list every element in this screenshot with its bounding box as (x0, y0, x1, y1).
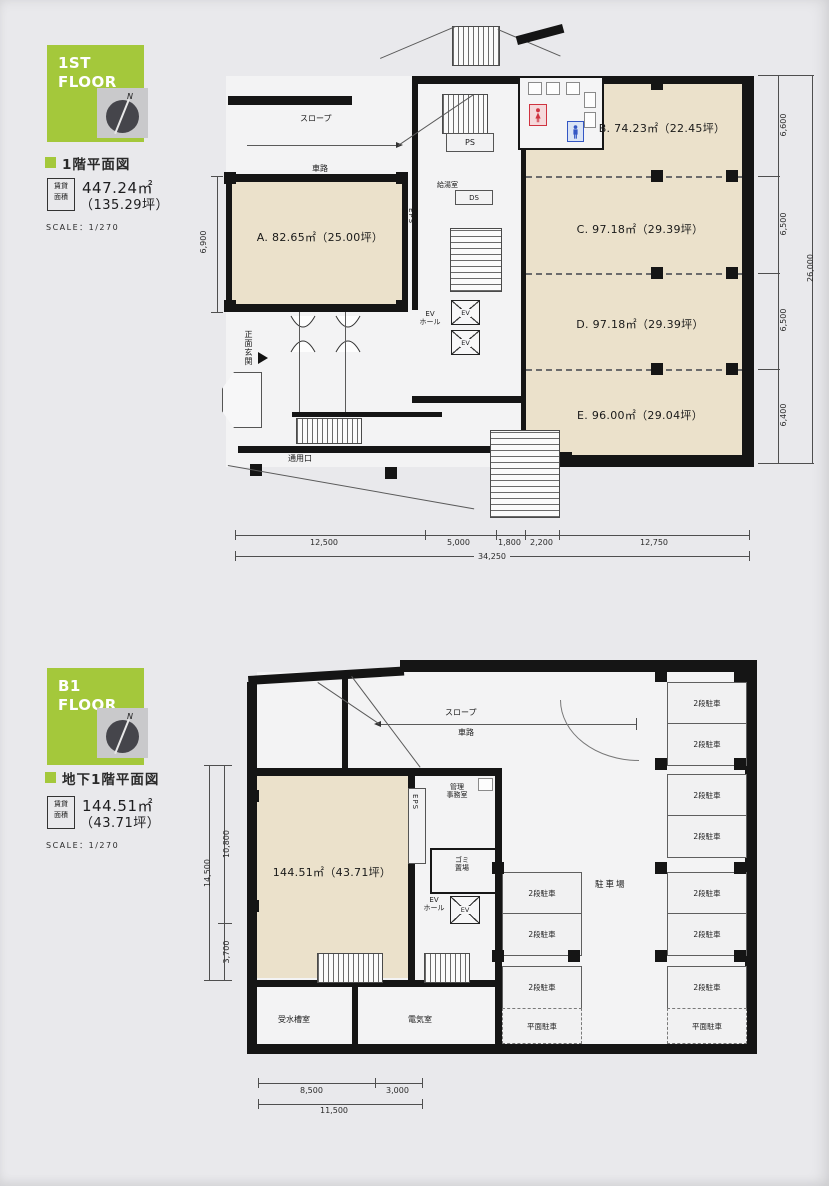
b1-elevator: EV (450, 896, 480, 924)
f1-dash-de (526, 369, 742, 371)
female-restroom-icon (529, 104, 547, 126)
f1-column (396, 172, 408, 184)
f1-room-d-label: D. 97.18㎡（29.39坪） (560, 316, 720, 332)
floor1-badge-line1: 1ST (58, 54, 144, 73)
f1-canopy-wall (516, 24, 565, 45)
dim-tick (204, 765, 232, 766)
b1-stair-2 (424, 953, 470, 983)
dim-tick (749, 551, 750, 561)
f1-dim-bottom-1: 12,500 (310, 538, 338, 547)
b1-stair-1 (317, 953, 383, 983)
b1-wall-bottom (247, 1044, 757, 1054)
b1-mgmt-office-label: 管理 事務室 (435, 783, 479, 799)
scanned-floorplan-page: 1ST FLOOR N 1階平面図 賃貸 面積 447.24㎡ （135.29坪… (0, 0, 829, 1186)
f1-elevator-2: EV (451, 330, 480, 355)
b1-desk-fixture (478, 778, 493, 791)
b1-water-tank-label: 受水槽室 (278, 1014, 310, 1025)
b1-column (655, 862, 667, 874)
b1-wall-upper-divider (342, 672, 348, 772)
b1-wall-tenant-top (247, 768, 502, 776)
b1-wall-top (400, 660, 757, 672)
f1-site-line (228, 465, 474, 509)
dim-tick (758, 369, 780, 370)
f1-dim-bottom-5: 12,750 (640, 538, 668, 547)
b1-area-tsubo: （43.71坪） (80, 812, 160, 831)
b1-column (734, 670, 746, 682)
b1-dim-left-2: 3,700 (222, 922, 234, 982)
b1-column (568, 950, 580, 962)
f1-core-wall-left (412, 84, 418, 310)
b1-column (655, 670, 667, 682)
b1-wall-core-right (495, 776, 502, 1044)
dim-tick (525, 530, 526, 540)
f1-roomA-wall-left (226, 182, 232, 304)
b1-wall-room-divider (352, 987, 358, 1044)
f1-dim-right-1: 6,600 (779, 95, 791, 155)
f1-column (385, 467, 397, 479)
f1-main-entrance-arrow (258, 352, 268, 364)
b1-column (734, 758, 746, 770)
b1-dim-bottom-total: 11,500 (316, 1106, 352, 1115)
b1-column (655, 758, 667, 770)
f1-slope-label: スロープ (300, 113, 332, 124)
b1-tenant-room-label: 144.51㎡（43.71坪） (252, 864, 412, 880)
f1-column (726, 170, 738, 182)
dim-line (217, 176, 218, 312)
dim-tick (496, 530, 497, 540)
dim-line (235, 535, 749, 536)
f1-entry-door-2 (335, 314, 361, 354)
heading-bullet (45, 772, 56, 783)
dim-tick (758, 75, 814, 76)
f1-column (396, 300, 408, 312)
f1-wall-right (742, 76, 754, 467)
b1-dim-left-total: 14,500 (203, 843, 215, 903)
b1-dim-bottom-1: 8,500 (300, 1086, 323, 1095)
f1-entry-door-1 (290, 314, 316, 354)
f1-stair-mid (450, 228, 502, 292)
b1-parking-lot-label: 駐車場 (595, 878, 627, 890)
f1-ds-room: DS (455, 190, 493, 205)
f1-ps-room: PS (446, 133, 494, 152)
f1-column (651, 267, 663, 279)
wc-fixture (528, 82, 542, 95)
f1-column (651, 363, 663, 375)
f1-column (560, 452, 572, 464)
f1-roomA-wall-top (226, 174, 408, 182)
f1-dim-right-total: 26,000 (806, 238, 818, 298)
parking-cell-flat: 平面駐車 (667, 1008, 747, 1044)
f1-room-c-label: C. 97.18㎡（29.39坪） (560, 221, 720, 237)
dim-tick (425, 530, 426, 540)
f1-dim-right-3: 6,500 (779, 290, 791, 350)
f1-dim-bottom-3: 1,800 (498, 538, 521, 547)
dim-tick (235, 530, 236, 540)
b1-driveway-label: 車路 (458, 727, 474, 738)
parking-cell: 2段駐車 (667, 682, 747, 725)
f1-entry-guide (345, 312, 346, 412)
f1-room-b-label: B. 74.23㎡（22.45坪） (582, 120, 742, 136)
dim-tick (559, 530, 560, 540)
f1-entry-guide (299, 312, 300, 412)
f1-core-wall-bottom (412, 396, 526, 403)
compass-icon: N (97, 88, 148, 138)
f1-dim-bottom-total: 34,250 (474, 552, 510, 561)
compass-north-label: N (127, 712, 133, 721)
dim-tick (258, 1099, 259, 1109)
b1-heading: 地下1階平面図 (62, 768, 159, 788)
floor1-scale: SCALE：1/270 (46, 222, 119, 233)
floor1-area-tsubo: （135.29坪） (80, 194, 169, 213)
f1-ev-hall-label: EV ホール (415, 310, 445, 326)
floor1-heading: 1階平面図 (62, 153, 130, 173)
dim-line (258, 1083, 422, 1084)
b1-scale: SCALE：1/270 (46, 840, 119, 851)
f1-column (651, 170, 663, 182)
b1-column (247, 790, 259, 802)
f1-column (726, 363, 738, 375)
f1-dim-bottom-4: 2,200 (530, 538, 553, 547)
f1-canopy-line (380, 26, 456, 59)
f1-column (224, 300, 236, 312)
parking-cell: 2段駐車 (502, 872, 582, 915)
b1-trash-label: ゴミ 置場 (440, 856, 484, 872)
f1-room-e-label: E. 96.00㎡（29.04坪） (560, 407, 720, 423)
b1-eps-label: EPS (411, 794, 419, 834)
b1-badge-line1: B1 (58, 677, 144, 696)
dim-tick (211, 312, 223, 313)
compass-icon-b1: N (97, 708, 148, 758)
b1-column (247, 900, 259, 912)
f1-dim-left: 6,900 (199, 212, 211, 272)
f1-dim-right-4: 6,400 (779, 385, 791, 445)
f1-service-stair (296, 418, 362, 444)
dim-tick (375, 1078, 376, 1088)
f1-driveway-label: 車路 (312, 163, 328, 174)
f1-roomA-wall-bottom (226, 304, 408, 312)
f1-room-a-label: A. 82.65㎡（25.00坪） (240, 229, 400, 245)
wc-fixture (584, 92, 596, 108)
b1-lease-label: 賃貸 面積 (47, 796, 75, 829)
wc-fixture (546, 82, 560, 95)
parking-cell: 2段駐車 (667, 774, 747, 817)
b1-dim-left-1: 10,800 (222, 814, 234, 874)
f1-dim-right-2: 6,500 (779, 194, 791, 254)
f1-eps-label: EPS (407, 208, 415, 248)
f1-dim-bottom-2: 5,000 (447, 538, 470, 547)
f1-elevator-1: EV (451, 300, 480, 325)
f1-slope-line (247, 145, 397, 146)
b1-column (655, 950, 667, 962)
dim-tick (422, 1078, 423, 1088)
f1-dash-bc (526, 176, 742, 178)
b1-dim-bottom-2: 3,000 (386, 1086, 409, 1095)
b1-electrical-label: 電気室 (408, 1014, 432, 1025)
f1-column (651, 78, 663, 90)
parking-cell: 2段駐車 (667, 966, 747, 1009)
b1-ev-hall-label: EV ホール (420, 896, 448, 912)
f1-north-exterior-stair (452, 26, 500, 66)
parking-cell: 2段駐車 (667, 872, 747, 915)
dim-tick (258, 1078, 259, 1088)
b1-column (492, 950, 504, 962)
f1-dash-cd (526, 273, 742, 275)
f1-kyuto-label: 給湯室 (437, 180, 458, 190)
dim-tick (211, 176, 223, 177)
parking-cell-flat: 平面駐車 (502, 1008, 582, 1044)
b1-column (734, 862, 746, 874)
f1-corridor-wall (292, 412, 442, 417)
heading-bullet (45, 157, 56, 168)
f1-service-wall (238, 446, 530, 453)
wc-fixture (566, 82, 580, 95)
dim-tick (422, 1099, 423, 1109)
b1-slope-label: スロープ (445, 707, 477, 718)
f1-exterior-stair (490, 430, 560, 518)
f1-column (726, 267, 738, 279)
dim-tick (758, 463, 814, 464)
f1-service-entrance-label: 通用口 (288, 453, 312, 464)
parking-cell: 2段駐車 (502, 966, 582, 1009)
f1-wall-topleft (228, 96, 352, 105)
parking-cell: 2段駐車 (667, 815, 747, 858)
b1-column (734, 950, 746, 962)
compass-north-label: N (127, 92, 133, 101)
dim-tick (758, 176, 780, 177)
f1-column (224, 172, 236, 184)
dim-tick (749, 530, 750, 540)
dim-tick (235, 551, 236, 561)
dim-tick (758, 273, 780, 274)
dim-line (258, 1104, 422, 1105)
floor1-lease-label: 賃貸 面積 (47, 178, 75, 211)
b1-column (492, 862, 504, 874)
